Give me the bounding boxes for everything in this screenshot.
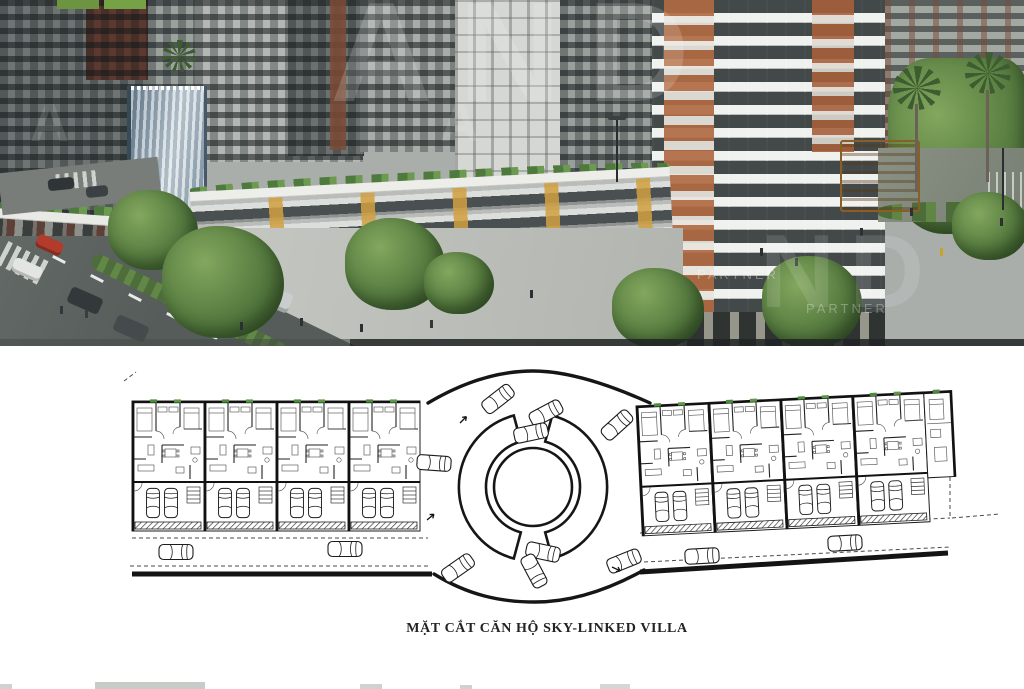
- roundabout-car: [440, 552, 476, 584]
- left-wing: [132, 399, 420, 531]
- plan-caption: MẶT CẮT CĂN HỘ SKY-LINKED VILLA: [357, 621, 737, 637]
- roundabout-car: [480, 383, 516, 416]
- roundabout-car: [417, 454, 452, 471]
- villa-unit-endcap: [924, 389, 956, 478]
- villa-unit: [780, 394, 858, 529]
- villa-unit: [276, 399, 348, 531]
- next-section-fragment-4: [460, 685, 472, 689]
- villa-unit: [204, 399, 276, 531]
- next-section-fragment-2: [95, 682, 205, 689]
- roundabout-core: [494, 448, 572, 526]
- direction-tick: [458, 415, 468, 425]
- next-section-fragment-1: [0, 684, 12, 689]
- road-car: [159, 545, 193, 560]
- roundabout-car: [605, 548, 642, 575]
- roundabout-car: [527, 398, 564, 427]
- villa-unit: [708, 397, 786, 532]
- villa-unit: [636, 401, 714, 536]
- roundabout-car: [599, 408, 634, 442]
- villa-unit: [348, 399, 420, 531]
- right-wing: [636, 389, 958, 536]
- road-car: [328, 542, 362, 557]
- roundabout-car: [513, 422, 549, 444]
- road-car: [685, 548, 720, 565]
- villa-unit: [132, 399, 204, 531]
- direction-tick: [425, 512, 435, 522]
- page: AND A A ND PARTNER PARTNER: [0, 0, 1024, 689]
- next-section-fragment-5: [600, 684, 630, 689]
- villa-unit: [852, 390, 930, 525]
- road-car: [828, 535, 863, 552]
- next-section-fragment-3: [360, 684, 382, 689]
- floor-plan: [0, 0, 1024, 689]
